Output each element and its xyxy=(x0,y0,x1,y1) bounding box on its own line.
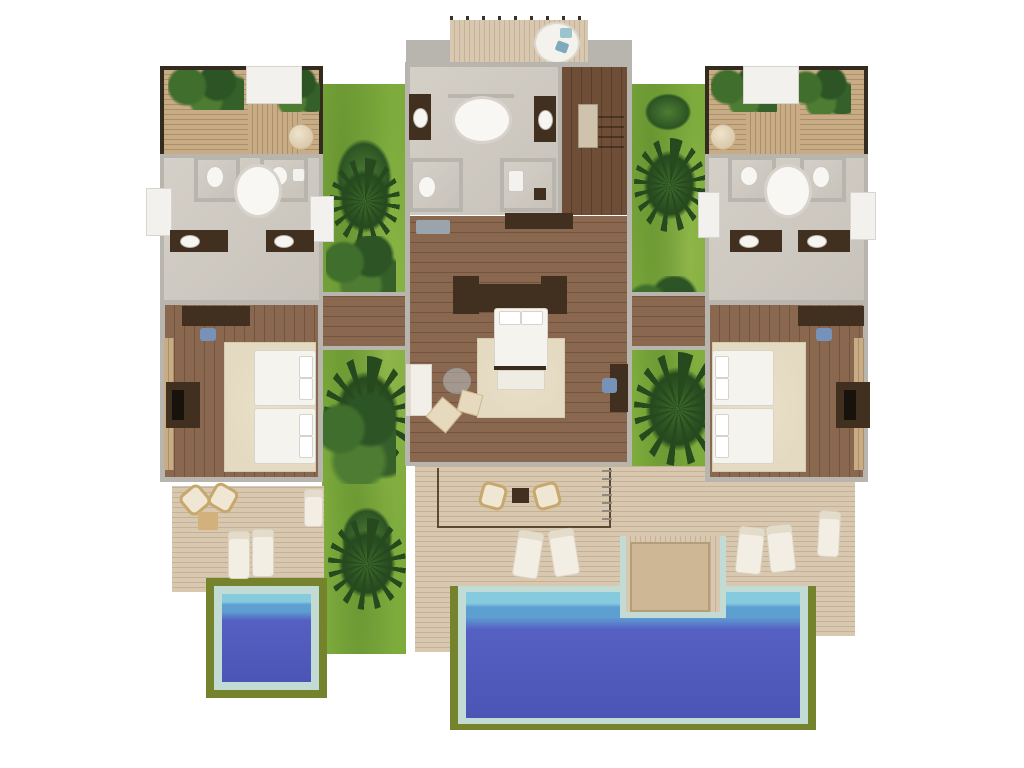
bathtub xyxy=(234,164,282,218)
palm-tree xyxy=(328,518,406,610)
stair-treads xyxy=(594,108,624,148)
deck-main-right-strip xyxy=(812,586,855,636)
desk-chair xyxy=(816,328,832,341)
outdoor-shower-panel xyxy=(743,66,799,104)
shower-room xyxy=(698,192,720,238)
toilet xyxy=(812,166,830,188)
vanity xyxy=(730,230,782,252)
vanity xyxy=(798,230,850,252)
vanity xyxy=(170,230,228,252)
desk xyxy=(798,306,864,326)
sun-lounger xyxy=(252,529,274,577)
bed-bench xyxy=(497,370,545,390)
twin-bed xyxy=(254,350,316,406)
sun-lounger xyxy=(817,510,841,557)
closet-shelf xyxy=(505,213,573,229)
tv-screen xyxy=(844,390,856,420)
floor-plan-canvas xyxy=(0,0,1024,768)
tv-screen xyxy=(172,390,184,420)
bed-pillow xyxy=(715,356,729,378)
beanbag xyxy=(710,124,736,150)
vanity xyxy=(534,96,556,142)
sink xyxy=(739,235,759,248)
sun-lounger xyxy=(766,524,797,573)
toilet xyxy=(418,176,436,198)
sofa xyxy=(406,364,432,416)
desk-chair xyxy=(200,328,216,341)
bed-pillow xyxy=(499,311,521,325)
toilet xyxy=(206,166,224,188)
sun-lounger xyxy=(228,531,250,579)
corridor-left xyxy=(322,292,406,350)
bed-pillow xyxy=(299,436,313,458)
bathtub xyxy=(764,164,812,218)
palm-tree xyxy=(634,138,706,232)
outdoor-shower-panel xyxy=(246,66,302,104)
beanbag xyxy=(288,124,314,150)
sun-lounger xyxy=(304,489,323,527)
sink xyxy=(538,110,553,130)
twin-bed xyxy=(254,408,316,464)
planter-plants xyxy=(791,70,851,114)
vanity xyxy=(409,94,431,140)
king-bed xyxy=(494,308,548,370)
sun-lounger xyxy=(735,526,766,575)
fern-cluster xyxy=(322,392,396,484)
desk xyxy=(182,306,250,326)
corridor-right xyxy=(632,292,706,350)
deck-side-table xyxy=(198,512,218,530)
bed-pillow xyxy=(521,311,543,325)
terrace-table xyxy=(512,488,529,503)
bidet xyxy=(292,168,305,182)
pool-platform-daybed xyxy=(630,542,710,612)
shower-room xyxy=(850,192,876,240)
shower-room xyxy=(146,188,172,236)
bed-pillow xyxy=(715,436,729,458)
nightstand xyxy=(453,276,479,314)
bed-pillow xyxy=(299,378,313,400)
shower-fixture xyxy=(508,170,524,192)
toilet xyxy=(740,166,758,186)
sink xyxy=(807,235,827,248)
plunge-pool-water xyxy=(222,594,311,682)
bed-pillow xyxy=(715,378,729,400)
planter-plants xyxy=(168,70,244,110)
sink xyxy=(180,235,200,248)
vanity xyxy=(266,230,314,252)
side-stool xyxy=(534,188,546,200)
bed-pillow xyxy=(715,414,729,436)
twin-bed xyxy=(712,408,774,464)
bed-pillow xyxy=(299,356,313,378)
daybed-pillow xyxy=(560,28,572,38)
palm-bush xyxy=(638,88,698,136)
twin-bed xyxy=(712,350,774,406)
master-bathtub xyxy=(452,96,512,144)
sink xyxy=(274,235,294,248)
partition-wall xyxy=(558,67,562,215)
palm-tree xyxy=(330,158,400,244)
sink xyxy=(413,108,428,128)
bed-pillow xyxy=(299,414,313,436)
stair-rail xyxy=(578,104,598,148)
closet-bench xyxy=(416,220,450,234)
accent-chair xyxy=(602,378,617,393)
deck-steps-railing xyxy=(602,464,612,520)
